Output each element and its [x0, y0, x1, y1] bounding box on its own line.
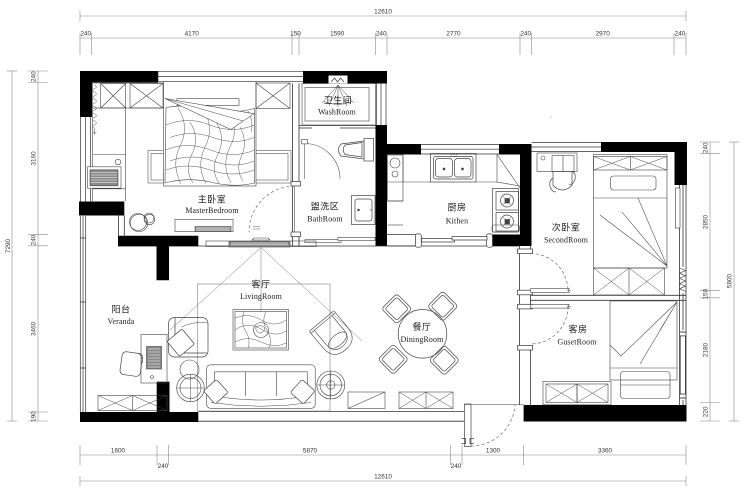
svg-text:150: 150: [290, 31, 301, 38]
svg-text:DiningRoom: DiningRoom: [401, 335, 444, 344]
svg-text:卫生间: 卫生间: [324, 95, 353, 106]
svg-text:4170: 4170: [185, 31, 200, 38]
svg-text:7290: 7290: [5, 238, 12, 253]
svg-text:220: 220: [703, 406, 710, 417]
svg-text:240: 240: [158, 463, 169, 470]
svg-text:240: 240: [703, 142, 710, 153]
svg-text:240: 240: [80, 31, 91, 38]
svg-text:2180: 2180: [703, 342, 710, 357]
svg-text:盥洗区: 盥洗区: [311, 201, 340, 212]
svg-text:12610: 12610: [374, 9, 392, 16]
svg-text:厨房: 厨房: [447, 202, 466, 213]
svg-text:240: 240: [376, 31, 387, 38]
svg-text:190: 190: [31, 411, 38, 422]
svg-text:WashRoom: WashRoom: [318, 108, 357, 117]
svg-text:阳台: 阳台: [111, 304, 130, 315]
svg-text:MasterBedroom: MasterBedroom: [185, 206, 239, 215]
svg-text:5800: 5800: [727, 273, 734, 288]
svg-text:240: 240: [675, 31, 686, 38]
svg-text:1590: 1590: [330, 31, 345, 38]
svg-text:2770: 2770: [446, 31, 461, 38]
svg-text:2970: 2970: [596, 31, 611, 38]
svg-text:12610: 12610: [374, 474, 392, 481]
svg-text:3460: 3460: [31, 321, 38, 336]
svg-text:240: 240: [451, 463, 462, 470]
svg-text:LivingRoom: LivingRoom: [240, 292, 283, 301]
svg-text:150: 150: [703, 288, 710, 299]
svg-text:Veranda: Veranda: [108, 317, 135, 326]
svg-text:3160: 3160: [31, 151, 38, 166]
svg-text:3360: 3360: [598, 448, 613, 455]
svg-text:餐厅: 餐厅: [412, 321, 431, 332]
svg-text:Kithen: Kithen: [446, 217, 468, 226]
svg-text:客厅: 客厅: [251, 279, 270, 290]
svg-text:1600: 1600: [111, 448, 126, 455]
svg-text:BathRoom: BathRoom: [307, 215, 343, 224]
svg-text:240: 240: [31, 234, 38, 245]
svg-text:客房: 客房: [568, 324, 587, 335]
svg-text:主卧室: 主卧室: [198, 194, 227, 205]
svg-text:240: 240: [31, 71, 38, 82]
svg-text:240: 240: [520, 31, 531, 38]
svg-text:SecondRoom: SecondRoom: [544, 236, 589, 245]
svg-text:次卧室: 次卧室: [552, 222, 581, 233]
svg-text:2850: 2850: [703, 214, 710, 229]
svg-text:1300: 1300: [486, 448, 501, 455]
svg-text:GusetRoom: GusetRoom: [557, 338, 597, 347]
svg-text:5870: 5870: [303, 448, 318, 455]
